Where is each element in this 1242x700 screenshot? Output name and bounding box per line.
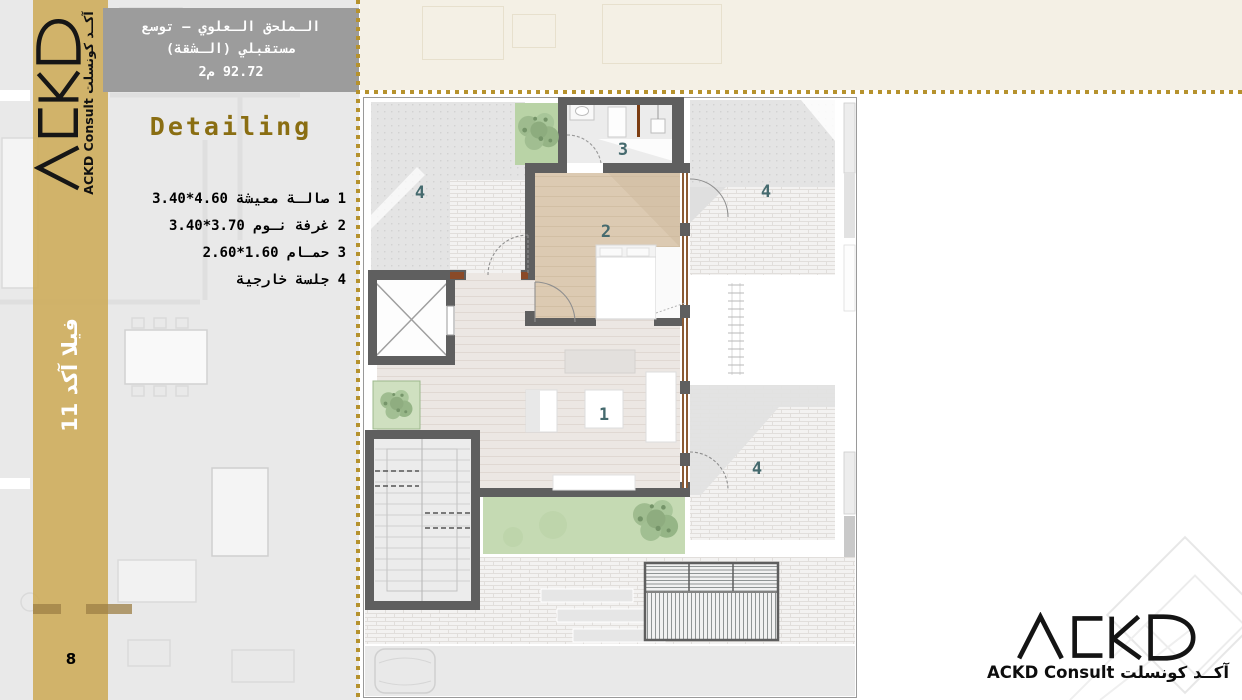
room-label-terrace-c: 4 bbox=[752, 459, 762, 479]
sidebar-accent-bar bbox=[86, 604, 132, 614]
project-label-text: فيلا آكد 11 bbox=[58, 318, 82, 432]
room-label-bedroom: 2 bbox=[601, 222, 611, 242]
pergola bbox=[645, 563, 778, 640]
vertical-brand-logo: ACKD Consult آكــد كونسلت bbox=[34, 6, 110, 198]
floor-plan: 1 2 3 4 4 4 bbox=[363, 97, 857, 698]
slide-header: الـملحق الـعلوي – توسع مستقبلي (الـشقة) … bbox=[103, 8, 359, 92]
ackd-logo-caption: ACKD Consult آكــد كونسلت bbox=[82, 11, 96, 194]
legend-item: 2 غرفة نـوم 3.70*3.40 bbox=[90, 213, 346, 240]
room-legend: 1 صالـة معيشة 4.60*3.40 2 غرفة نـوم 3.70… bbox=[90, 186, 346, 294]
page-number: 8 bbox=[60, 650, 82, 668]
band-watermark-shape bbox=[602, 4, 722, 64]
band-watermark-shape bbox=[512, 14, 556, 48]
elevator bbox=[368, 270, 466, 365]
room-label-bathroom: 3 bbox=[618, 140, 628, 160]
presentation-slide: ACKD Consult آكــد كونسلت فيلا آكد 11 ال… bbox=[0, 0, 1242, 700]
header-line-1: الـملحق الـعلوي – توسع bbox=[103, 16, 359, 38]
room-label-terrace-a: 4 bbox=[415, 183, 425, 203]
header-line-2: مستقبلي (الـشقة) bbox=[103, 38, 359, 60]
band-watermark-shape bbox=[422, 6, 504, 60]
ackd-logo-mark bbox=[1009, 612, 1207, 662]
sidebar-accent-bar bbox=[33, 604, 61, 614]
footer-brand-logo: ACKD Consult آكــد كونسلت bbox=[1003, 612, 1213, 682]
legend-item: 4 جلسة خارجية bbox=[90, 267, 346, 294]
room-label-terrace-b: 4 bbox=[761, 182, 771, 202]
header-line-3: 92.72 م2 bbox=[103, 61, 359, 83]
stairwell bbox=[365, 430, 480, 610]
section-title: Detailing bbox=[103, 112, 359, 141]
divider-vertical-dotted bbox=[356, 0, 360, 700]
divider-horizontal-dotted bbox=[356, 90, 1242, 94]
terrace-bottom-right bbox=[690, 385, 835, 540]
footer-logo-caption: ACKD Consult آكــد كونسلت bbox=[987, 663, 1229, 682]
top-beige-band bbox=[360, 0, 1242, 90]
room-label-living: 1 bbox=[599, 405, 609, 425]
legend-item: 1 صالـة معيشة 4.60*3.40 bbox=[90, 186, 346, 213]
ackd-logo-mark bbox=[34, 12, 82, 194]
legend-item: 3 حمـام 1.60*2.60 bbox=[90, 240, 346, 267]
street-strip bbox=[365, 645, 855, 696]
